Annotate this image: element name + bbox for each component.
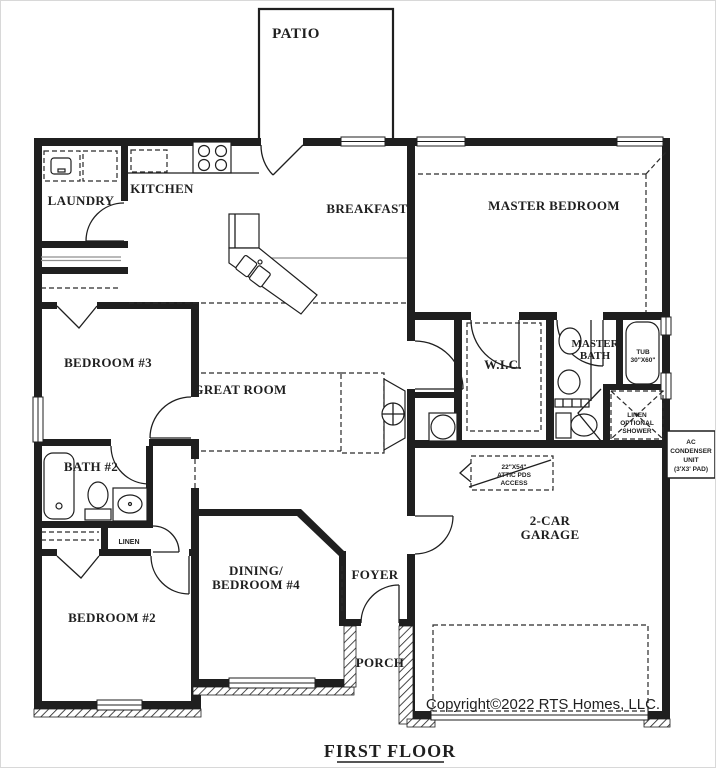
bifold-bedroom3-closet: [57, 306, 97, 328]
label-tub-1: TUB: [636, 349, 650, 356]
toilet2-icon: [85, 482, 111, 520]
door-bedroom3: [150, 397, 191, 438]
label-ac-1: AC: [686, 439, 696, 446]
door-patio: [261, 145, 303, 175]
door-bedroom2: [151, 556, 189, 594]
window: [661, 317, 671, 335]
label-shower-2: OPTIONAL: [620, 420, 654, 427]
window: [33, 397, 43, 442]
room-label-master-bedroom: MASTER BEDROOM: [488, 198, 620, 213]
label-attic-1: 22"X54": [502, 464, 527, 471]
vanity2-icon: [113, 488, 147, 521]
label-linen: LINEN: [119, 539, 140, 546]
door-laundry: [86, 203, 124, 241]
door-front: [361, 585, 399, 623]
label-shower-1: LINEN: [627, 412, 647, 419]
room-label-dining-1: DINING/: [229, 563, 283, 578]
label-ac-2: CONDENSER: [670, 448, 712, 455]
label-ac-4: (3'X3' PAD): [674, 466, 708, 473]
room-label-bedroom3: BEDROOM #3: [64, 355, 152, 370]
room-label-foyer: FOYER: [352, 567, 399, 582]
room-label-laundry: LAUNDRY: [48, 193, 115, 208]
room-label-dining-2: BEDROOM #4: [212, 577, 300, 592]
room-label-bath2: BATH #2: [64, 459, 118, 474]
room-label-patio: PATIO: [272, 26, 320, 42]
room-label-master-bath-1: MASTER: [571, 338, 619, 350]
window: [341, 137, 385, 146]
door-linen: [153, 526, 179, 552]
room-label-kitchen: KITCHEN: [130, 181, 194, 196]
room-label-garage-2: GARAGE: [521, 527, 580, 542]
master-toilet-icon: [556, 413, 597, 438]
room-label-bedroom2: BEDROOM #2: [68, 610, 156, 625]
window: [97, 700, 142, 710]
window: [417, 137, 465, 146]
room-label-wic: W.I.C.: [484, 357, 522, 372]
stove-icon: [193, 142, 231, 173]
label-tub-2: 30"X60": [631, 357, 656, 364]
sheet-title: FIRST FLOOR: [324, 741, 456, 761]
water-heater-icon: [429, 413, 457, 441]
window: [229, 678, 315, 688]
master-vanity-icon: [555, 320, 591, 407]
bifold-bedroom2-closet: [57, 556, 99, 578]
floor-plan-sheet: PATIO LAUNDRY KITCHEN BREAKFAST MASTER B…: [0, 0, 716, 768]
door-garage-service: [415, 516, 453, 554]
kitchen-counter: [128, 150, 317, 314]
label-attic-2: ATTIC PDS: [497, 472, 531, 479]
room-label-porch: PORCH: [356, 655, 404, 670]
copyright-text: Copyright©2022 RTS Homes, LLC.: [426, 696, 660, 713]
label-shower-3: SHOWER: [622, 428, 652, 435]
room-label-breakfast: BREAKFAST: [326, 201, 407, 216]
room-label-master-bath-2: BATH: [580, 350, 611, 362]
media-niche-icon: [382, 379, 405, 450]
washer-dryer-icon: [44, 151, 117, 181]
window: [617, 137, 663, 146]
room-label-great-room: GREAT ROOM: [193, 382, 286, 397]
room-label-garage-1: 2-CAR: [530, 513, 571, 528]
label-attic-3: ACCESS: [500, 480, 528, 487]
label-ac-3: UNIT: [683, 457, 698, 464]
floor-plan-drawing: PATIO LAUNDRY KITCHEN BREAKFAST MASTER B…: [1, 1, 716, 768]
